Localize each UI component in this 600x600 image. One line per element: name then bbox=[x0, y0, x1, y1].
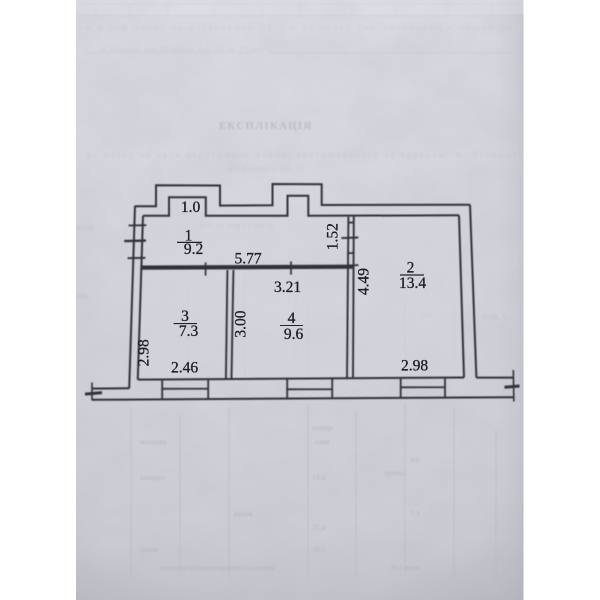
svg-text:25.4: 25.4 bbox=[312, 523, 325, 532]
svg-text:2.98: 2.98 bbox=[136, 339, 153, 366]
svg-text:стор. 1: стор. 1 bbox=[483, 312, 506, 321]
svg-text:3.00: 3.00 bbox=[233, 310, 250, 337]
svg-text:4: 4 bbox=[288, 310, 296, 327]
svg-text:кімн: кімн bbox=[315, 437, 330, 446]
svg-text:ЕКСПЛІКАЦІЯ: ЕКСПЛІКАЦІЯ bbox=[219, 121, 313, 132]
svg-text:1.52: 1.52 bbox=[325, 223, 342, 250]
svg-text:юч.: юч. bbox=[77, 291, 89, 300]
svg-text:7.3: 7.3 bbox=[410, 509, 420, 518]
svg-text:5.77: 5.77 bbox=[234, 251, 261, 268]
svg-text:кімната: кімната bbox=[140, 473, 165, 482]
svg-text:разом: разом bbox=[140, 545, 159, 554]
svg-text:2.46: 2.46 bbox=[171, 360, 198, 377]
svg-text:площа: площа bbox=[385, 468, 406, 477]
svg-text:2.98: 2.98 bbox=[401, 358, 428, 375]
svg-text:7.3: 7.3 bbox=[179, 323, 199, 340]
svg-text:39.5: 39.5 bbox=[312, 545, 325, 554]
svg-text:к-сть: к-сть bbox=[77, 223, 95, 232]
svg-text:9.6: 9.6 bbox=[410, 455, 420, 464]
svg-text:загальна площа квартири станов: загальна площа квартири становить bbox=[160, 563, 275, 572]
svg-text:м. Вінниця, вул. Келецька, буд: м. Вінниця, вул. Келецька, буд. 57, кв. … bbox=[100, 44, 263, 54]
svg-text:площа: площа bbox=[312, 423, 333, 432]
svg-text:кухня: кухня bbox=[234, 509, 253, 518]
svg-text:житлова: житлова bbox=[139, 437, 167, 446]
svg-text:вул. Келецька, буд. 57: вул. Келецька, буд. 57 bbox=[226, 163, 304, 173]
svg-text:4.49: 4.49 bbox=[356, 268, 373, 295]
svg-text:3.21: 3.21 bbox=[274, 279, 301, 296]
svg-text:9.2: 9.2 bbox=[184, 241, 203, 258]
svg-text:2: 2 bbox=[407, 260, 415, 277]
svg-text:13.4: 13.4 bbox=[312, 473, 325, 482]
svg-text:39.5 кв.м: 39.5 кв.м bbox=[390, 563, 419, 572]
svg-text:13.4: 13.4 bbox=[399, 275, 426, 292]
svg-text:9.6: 9.6 bbox=[284, 326, 304, 343]
svg-text:1.0: 1.0 bbox=[181, 199, 201, 216]
svg-text:и в том числе по категориям 2: и в том числе по категориям 21-5 н на пр… bbox=[86, 22, 511, 32]
